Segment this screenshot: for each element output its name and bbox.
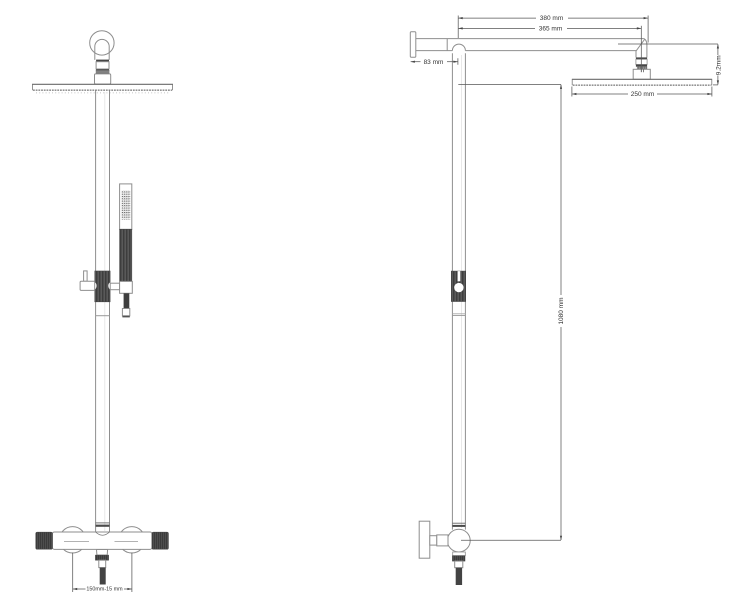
svg-text:150mm-15 mm: 150mm-15 mm [86, 586, 123, 592]
svg-text:380 mm: 380 mm [540, 15, 563, 22]
svg-text:365 mm: 365 mm [539, 26, 562, 33]
svg-text:83 mm: 83 mm [424, 59, 444, 66]
svg-text:1080 mm: 1080 mm [558, 297, 565, 324]
svg-text:250 mm: 250 mm [631, 91, 654, 98]
svg-text:9.2mm: 9.2mm [716, 55, 723, 75]
